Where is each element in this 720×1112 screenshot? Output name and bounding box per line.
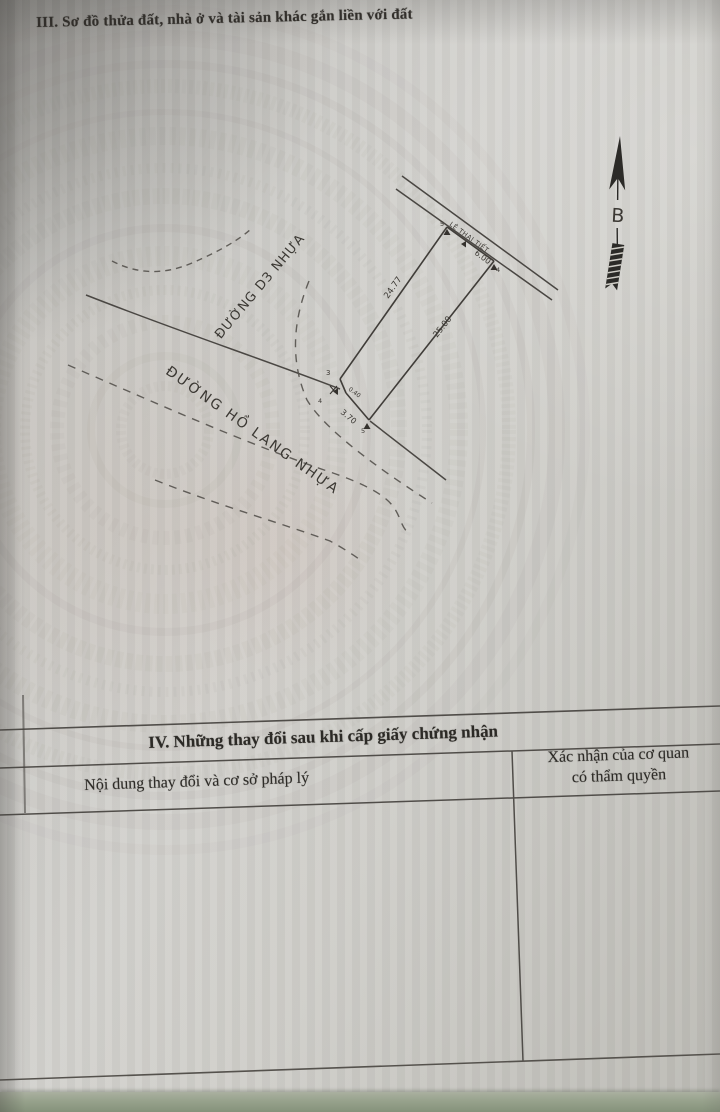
dim-left-edge: 24.77 <box>382 275 404 301</box>
vertex-label-4a: 4 <box>318 397 322 405</box>
table-bottom-border <box>0 1054 720 1080</box>
road-dashed-lines <box>68 228 432 562</box>
plot-outline <box>340 227 494 420</box>
vertex-label-4b: 4 <box>496 266 500 274</box>
table-col2-header-line1: Xác nhận của cơ quan <box>547 744 689 766</box>
bottom-green-edge <box>0 1092 720 1112</box>
vertex-label-5b: 5 <box>361 427 365 435</box>
north-arrow: B <box>604 136 630 291</box>
table-col2-header-line2: có thẩm quyền <box>572 766 667 786</box>
vertex-ticks <box>330 229 498 429</box>
vertex-label-3: 3 <box>326 369 330 377</box>
dim-bottom-frontage: 3.70 <box>339 408 358 426</box>
table-col2-header: Xác nhận của cơ quan có thẩm quyền <box>520 742 717 791</box>
road-d3-dashed-curve <box>112 228 252 272</box>
road-ho-lang-edge-continuation <box>370 421 446 480</box>
dim-right-edge: 25.00 <box>431 315 454 340</box>
road-ho-lang-label: ĐƯỜNG HỒ LANG NHỰA <box>162 361 344 498</box>
north-label: B <box>611 205 625 228</box>
north-arrow-head <box>609 136 628 191</box>
plot-diagram: 24.77 25.00 6.00 3.70 0.40 3 4 4 5 5 ĐƯỜ… <box>0 0 720 700</box>
left-fold-line <box>23 695 25 813</box>
vertex-label-5a: 5 <box>440 220 444 228</box>
road-ho-lang-edge <box>86 295 340 389</box>
table-colheader-underline <box>0 791 720 815</box>
document-page: III. Sơ đồ thửa đất, nhà ở và tài sản kh… <box>0 0 720 1112</box>
north-arrow-tail <box>605 243 624 290</box>
road-d3-label: ĐƯỜNG D3 NHỰA <box>211 231 308 342</box>
